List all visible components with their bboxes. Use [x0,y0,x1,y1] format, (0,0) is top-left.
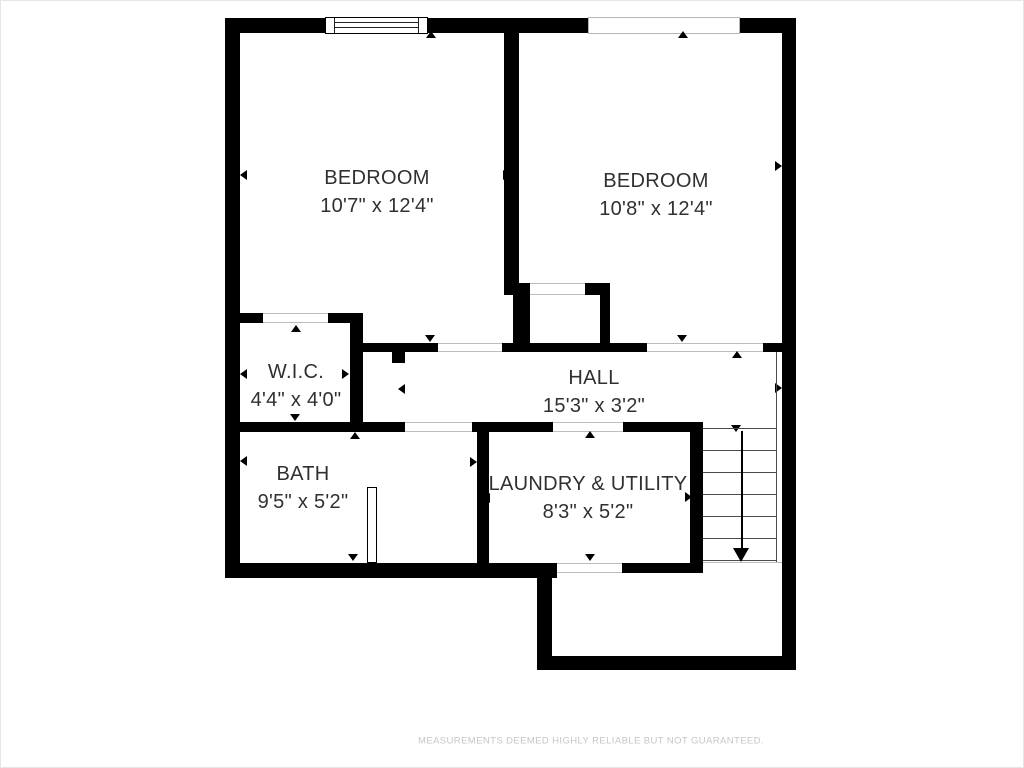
room-label-bedroom-left: BEDROOM 10'7" x 12'4" [320,164,434,220]
wall [600,295,610,343]
measurement-arrow-up-icon [732,351,742,358]
window-cap-line [418,18,419,33]
window-icon [588,17,740,34]
measurement-arrow-right-icon [775,161,782,171]
window-cap-line [334,18,335,33]
door-opening [557,563,622,573]
door-opening [647,343,763,352]
room-label-hall: HALL 15'3" x 3'2" [543,364,645,420]
stair-tread-line [703,516,776,517]
room-name: BEDROOM [320,164,434,192]
measurement-arrow-left-icon [398,384,405,394]
stair-tread-line [703,450,776,451]
wall [502,343,647,352]
room-dimensions: 4'4" x 4'0" [251,386,342,414]
wall [504,18,519,295]
floor-plan-drawing [0,0,1024,768]
room-dimensions: 8'3" x 5'2" [489,498,688,526]
wall [513,283,530,343]
measurement-arrow-right-icon [503,170,510,180]
window-pane-line [334,22,419,23]
measurement-arrow-left-icon [240,369,247,379]
stair-tread-line [703,428,776,429]
measurement-arrow-left-icon [240,456,247,466]
window-pane-line [334,27,419,28]
measurement-arrow-left-icon [240,170,247,180]
wall [585,283,610,295]
room-dimensions: 9'5" x 5'2" [258,488,349,516]
room-dimensions: 10'8" x 12'4" [599,195,713,223]
wall [537,563,552,670]
door-opening [263,313,328,323]
measurement-arrow-up-icon [585,431,595,438]
wall [350,313,363,432]
measurement-arrow-down-icon [348,554,358,561]
measurement-arrow-up-icon [678,31,688,38]
room-name: W.I.C. [251,358,342,386]
measurement-arrow-down-icon [585,554,595,561]
measurement-arrow-right-icon [342,369,349,379]
measurement-arrow-up-icon [291,325,301,332]
measurement-arrow-up-icon [426,31,436,38]
room-name: LAUNDRY & UTILITY [489,470,688,498]
measurement-arrow-down-icon [290,414,300,421]
measurement-arrow-left-icon [512,162,519,172]
wall [225,422,405,432]
stair-edge-line [776,352,777,562]
room-dimensions: 10'7" x 12'4" [320,192,434,220]
room-name: BATH [258,460,349,488]
room-label-wic: W.I.C. 4'4" x 4'0" [251,358,342,414]
measurement-arrow-up-icon [350,432,360,439]
wall [537,656,796,670]
stair-direction-arrow-shaft [741,431,743,550]
room-label-laundry: LAUNDRY & UTILITY 8'3" x 5'2" [489,470,688,526]
room-label-bedroom-right: BEDROOM 10'8" x 12'4" [599,167,713,223]
disclaimer-text: MEASUREMENTS DEEMED HIGHLY RELIABLE BUT … [418,736,764,747]
door-opening [438,343,502,352]
wall [763,343,782,352]
wall [350,343,438,352]
measurement-arrow-down-icon [677,335,687,342]
wall [225,18,240,578]
stair-tread-line [703,494,776,495]
stair-tread-line [703,472,776,473]
stair-tread-line [703,538,776,539]
room-name: HALL [543,364,645,392]
floor-plan-canvas: BEDROOM 10'7" x 12'4" BEDROOM 10'8" x 12… [0,0,1024,768]
stair-bottom-line [703,562,782,563]
wall [782,18,796,670]
room-label-bath: BATH 9'5" x 5'2" [258,460,349,516]
room-name: BEDROOM [599,167,713,195]
wall [225,313,263,323]
window-icon [325,17,428,34]
stair-direction-arrow-head-icon [733,548,749,562]
bath-door-leaf [367,487,377,563]
room-dimensions: 15'3" x 3'2" [543,392,645,420]
door-opening [405,422,472,432]
wall [392,352,405,363]
measurement-arrow-right-icon [470,457,477,467]
wall [225,563,557,578]
measurement-arrow-down-icon [425,335,435,342]
wall [622,563,703,573]
door-opening [530,283,585,295]
